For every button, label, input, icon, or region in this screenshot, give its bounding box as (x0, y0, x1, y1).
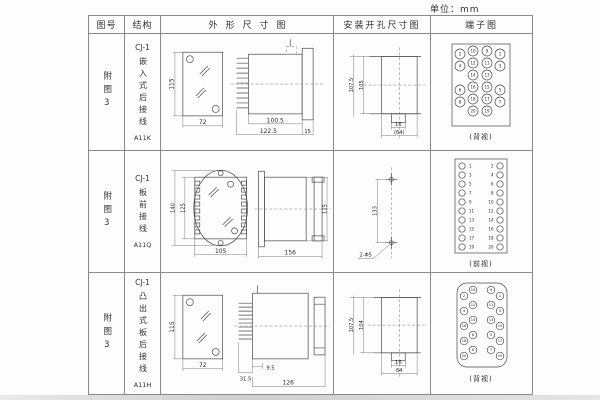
svg-text:4: 4 (463, 309, 466, 313)
dim-front-width: 72 (199, 118, 207, 125)
scan-edge-artifact (0, 395, 600, 400)
view-caption: (前视) (469, 259, 492, 268)
svg-text:9: 9 (486, 48, 489, 53)
svg-text:12: 12 (488, 208, 494, 213)
svg-text:16: 16 (488, 226, 494, 231)
svg-text:2: 2 (463, 294, 465, 298)
header-install-dims: 安装开孔尺寸图 (334, 16, 431, 34)
dim-body-depth: 100.5 (267, 117, 284, 124)
svg-text:8: 8 (472, 348, 475, 352)
outline-svg-a11h: 115 72 9.5 31.5 126 (161, 273, 333, 394)
dim-inner-height: 104 (359, 320, 365, 330)
terminal-circles (459, 162, 503, 249)
structure-row1: CJ-1 嵌入式后接线 A11K (125, 34, 161, 151)
model-label: CJ-1 (135, 174, 150, 183)
dim-pin-depth: 31.5 (240, 377, 251, 383)
svg-text:1: 1 (499, 294, 501, 298)
svg-text:19: 19 (469, 244, 475, 249)
dim-step-depth: 9.5 (266, 365, 274, 371)
dim-front-width: 72 (199, 362, 207, 369)
svg-text:17: 17 (498, 339, 503, 343)
header-outline-dims: 外形尺寸图 (161, 16, 334, 34)
figure-no-row2: 附图3 (89, 151, 125, 273)
dim-body-depth: 126 (283, 380, 295, 387)
svg-text:16: 16 (462, 324, 467, 328)
svg-text:9: 9 (490, 288, 493, 292)
svg-text:20: 20 (462, 354, 467, 358)
outline-drawing-row2: 140 125 105 156 115 (161, 151, 334, 273)
svg-text:14: 14 (470, 72, 476, 77)
svg-text:6: 6 (472, 333, 475, 337)
dim-flange-width: 15 (304, 128, 311, 134)
figure-no-row1: 附图3 (89, 34, 125, 151)
svg-text:13: 13 (489, 318, 494, 322)
svg-text:17: 17 (469, 235, 475, 240)
svg-text:19: 19 (484, 108, 490, 113)
structure-row2: CJ-1 板前接线 A11Q (125, 151, 161, 273)
svg-text:13: 13 (484, 72, 490, 77)
svg-text:4: 4 (459, 63, 462, 68)
svg-text:3: 3 (469, 172, 472, 177)
dim-slot-width: 16 (395, 122, 402, 128)
dim-hole-span: 64 (396, 368, 403, 374)
svg-text:2: 2 (459, 51, 462, 56)
view-caption: (背视) (469, 132, 492, 141)
terminal-drawing-row2: 1 3 5 7 9 11 13 15 17 19 2 4 6 8 10 12 1… (431, 151, 532, 273)
structure-type: 板前接线 (139, 188, 147, 236)
dim-front-outer-height: 140 (170, 203, 176, 213)
outline-drawing-row3: 115 72 9.5 31.5 126 (161, 273, 334, 394)
svg-text:15: 15 (498, 324, 503, 328)
dimension-table: 图号 结构 外形尺寸图 安装开孔尺寸图 端子图 附图3 CJ-1 嵌入式后接线 … (88, 15, 533, 395)
view-caption: (背视) (469, 374, 492, 383)
svg-text:2: 2 (491, 163, 494, 168)
unit-label: 单位：mm (430, 2, 480, 15)
install-drawing-row1: 107.5 105 16 (64) (334, 34, 431, 151)
dim-side-depth: 156 (285, 249, 297, 256)
terminal-circles (455, 46, 505, 116)
svg-text:18: 18 (488, 235, 494, 240)
svg-text:17: 17 (484, 96, 490, 101)
svg-text:10: 10 (470, 48, 476, 53)
dim-front-width: 105 (215, 247, 227, 254)
svg-text:20: 20 (488, 244, 494, 249)
header-structure: 结构 (125, 16, 161, 34)
dim-hole-spacing: 133 (373, 206, 379, 216)
svg-text:16: 16 (470, 84, 476, 89)
dim-inner-height: 105 (359, 80, 365, 90)
svg-text:5: 5 (490, 333, 492, 337)
structure-type: 嵌入式后接线 (139, 57, 147, 129)
svg-text:3: 3 (499, 63, 502, 68)
dim-slot-width: 16 (395, 360, 402, 366)
svg-text:4: 4 (491, 172, 494, 177)
model-label: CJ-1 (135, 43, 150, 52)
figure-no-text: 附图3 (102, 313, 111, 355)
install-svg-a11h: 107.5 104 16 64 (334, 273, 430, 394)
svg-text:11: 11 (489, 303, 494, 307)
outline-svg-a11k: 115 72 100.5 122.5 15 (161, 34, 333, 151)
svg-text:8: 8 (491, 190, 494, 195)
svg-text:6: 6 (491, 181, 494, 186)
dim-outer-height: 107.5 (349, 77, 355, 92)
svg-text:8: 8 (459, 99, 462, 104)
svg-text:10: 10 (488, 199, 494, 204)
terminal-svg-a11k: 2 10 9 1 4 12 11 3 14 13 6 16 15 5 8 18 … (431, 34, 532, 151)
svg-text:7: 7 (490, 348, 492, 352)
svg-text:12: 12 (470, 60, 476, 65)
terminal-svg-a11h: 10 2 12 4 14 16 6 18 8 20 9 1 11 3 13 15… (431, 273, 532, 394)
structure-code: A11Q (134, 241, 152, 249)
figure-no-row3: 附图3 (89, 273, 125, 394)
header-figure-no: 图号 (89, 16, 125, 34)
svg-text:7: 7 (469, 190, 472, 195)
svg-text:10: 10 (471, 288, 476, 292)
terminal-numbers-left: 1 3 5 7 9 11 13 15 17 19 (469, 163, 475, 249)
svg-text:9: 9 (469, 199, 472, 204)
header-terminal-diagram: 端子图 (431, 16, 532, 34)
structure-type: 凸出式板后接线 (139, 292, 147, 376)
svg-text:1: 1 (469, 163, 472, 168)
model-label: CJ-1 (135, 278, 150, 287)
structure-row3: CJ-1 凸出式板后接线 A11H (125, 273, 161, 394)
hole-size-label: 2-Φ5 (359, 252, 371, 258)
terminal-numbers: 10 2 12 4 14 16 6 18 8 20 9 1 11 3 13 15… (462, 288, 503, 358)
structure-code: A11H (134, 381, 152, 389)
terminal-drawing-row3: 10 2 12 4 14 16 6 18 8 20 9 1 11 3 13 15… (431, 273, 532, 394)
svg-text:14: 14 (488, 217, 494, 222)
dim-hole-span: (64) (394, 130, 405, 136)
svg-text:18: 18 (462, 339, 467, 343)
terminal-drawing-row1: 2 10 9 1 4 12 11 3 14 13 6 16 15 5 8 18 … (431, 34, 532, 151)
outline-svg-a11q: 140 125 105 156 115 (161, 151, 333, 273)
svg-text:1: 1 (499, 51, 502, 56)
svg-text:11: 11 (469, 208, 475, 213)
svg-text:18: 18 (470, 96, 476, 101)
svg-text:5: 5 (499, 87, 502, 92)
figure-no-text: 附图3 (102, 191, 111, 233)
install-svg-a11k: 107.5 105 16 (64) (334, 34, 430, 151)
terminal-circles (460, 286, 504, 360)
svg-text:7: 7 (499, 99, 502, 104)
svg-text:3: 3 (499, 309, 501, 313)
dim-total-depth: 122.5 (260, 127, 277, 134)
terminal-numbers-right: 2 4 6 8 10 12 14 16 18 20 (488, 163, 494, 249)
svg-text:19: 19 (498, 354, 503, 358)
install-drawing-row3: 107.5 104 16 64 (334, 273, 431, 394)
svg-text:12: 12 (471, 303, 476, 307)
svg-text:15: 15 (469, 226, 475, 231)
dim-outer-height: 107.5 (349, 318, 355, 333)
dim-side-height: 115 (323, 204, 329, 214)
svg-text:14: 14 (471, 318, 476, 322)
svg-text:13: 13 (469, 217, 475, 222)
dim-front-inner-height: 125 (180, 203, 186, 213)
svg-text:20: 20 (470, 108, 476, 113)
install-svg-a11q: 133 2-Φ5 (334, 151, 430, 273)
svg-text:6: 6 (459, 87, 462, 92)
terminal-svg-a11q: 1 3 5 7 9 11 13 15 17 19 2 4 6 8 10 12 1… (431, 151, 532, 273)
svg-text:15: 15 (484, 84, 490, 89)
figure-no-text: 附图3 (102, 71, 111, 113)
dim-front-height: 115 (168, 78, 175, 90)
dim-front-height: 115 (169, 321, 176, 333)
structure-code: A11K (134, 134, 151, 142)
svg-text:5: 5 (469, 181, 472, 186)
install-drawing-row2: 133 2-Φ5 (334, 151, 431, 273)
svg-text:11: 11 (484, 60, 490, 65)
outline-drawing-row1: 115 72 100.5 122.5 15 (161, 34, 334, 151)
